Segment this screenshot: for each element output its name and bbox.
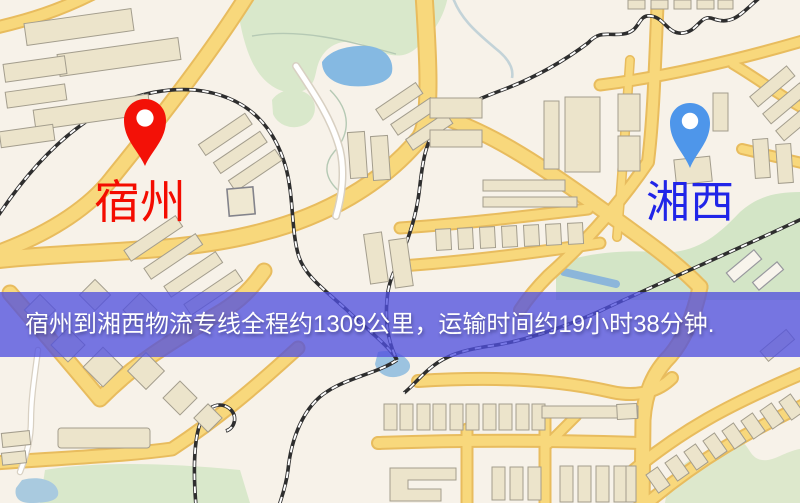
origin-pin-hole [136, 109, 153, 126]
map-canvas[interactable]: 宿州 湘西 [0, 0, 800, 503]
origin-label: 宿州 [94, 177, 186, 228]
route-info-text: 宿州到湘西物流专线全程约1309公里，运输时间约19小时38分钟. [25, 311, 714, 338]
route-info-banner: 宿州到湘西物流专线全程约1309公里，运输时间约19小时38分钟. [0, 292, 800, 357]
map-screenshot: 宿州 湘西 宿州到湘西物流专线全程约1309公里，运输时间约19小时38分钟. [0, 0, 800, 503]
destination-label: 湘西 [646, 178, 734, 227]
destination-pin-hole [682, 113, 698, 129]
